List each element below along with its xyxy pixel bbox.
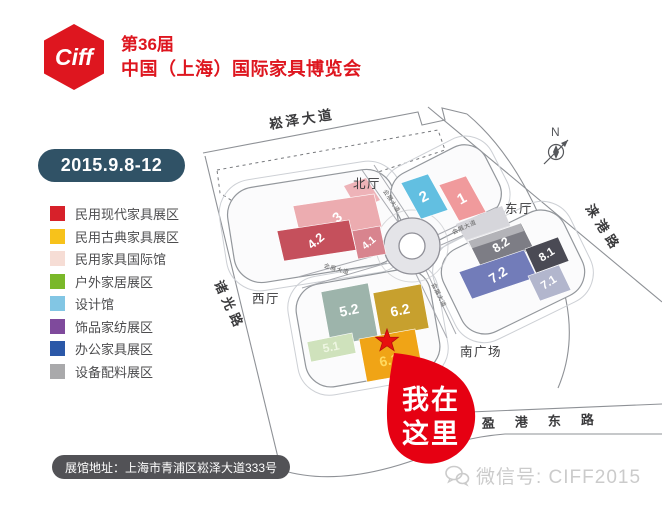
- south-plaza-label: 南广场: [460, 344, 502, 359]
- legend-swatch: [50, 229, 65, 244]
- legend-item: 饰品家纺展区: [50, 319, 179, 334]
- legend-swatch: [50, 206, 65, 221]
- legend-label: 设计馆: [75, 294, 114, 313]
- here-balloon: 我在 这里: [387, 353, 475, 464]
- legend-label: 办公家具展区: [75, 339, 153, 358]
- legend-label: 民用现代家具展区: [75, 204, 179, 223]
- legend-label: 民用家具国际馆: [75, 249, 166, 268]
- legend-swatch: [50, 319, 65, 334]
- date-badge: 2015.9.8-12: [38, 149, 185, 182]
- legend-label: 设备配料展区: [75, 362, 153, 381]
- page-title: 中国（上海）国际家具博览会: [121, 55, 362, 81]
- boundary-top: [203, 108, 467, 153]
- legend-item: 民用现代家具展区: [50, 206, 179, 221]
- wechat-icon: [444, 464, 470, 488]
- legend-item: 户外家居展区: [50, 274, 179, 289]
- here-balloon-line2: 这里: [402, 418, 460, 449]
- wechat-line: 微信号: CIFF2015: [444, 462, 641, 489]
- legend-label: 饰品家纺展区: [75, 317, 153, 336]
- legend-item: 民用古典家具展区: [50, 229, 179, 244]
- legend-swatch: [50, 341, 65, 356]
- legend-item: 民用家具国际馆: [50, 251, 179, 266]
- legend-swatch: [50, 296, 65, 311]
- road-yinggang-top-line: [470, 404, 662, 412]
- road-north-label: 崧泽大道: [268, 106, 336, 132]
- ciff-expo-map-page: 3 4.2 4.1 2 1 8.2 8.1 7.2 7.1 5.2 5.1 6.…: [0, 0, 662, 509]
- compass: N: [544, 125, 568, 164]
- west-hall-label: 西厅: [252, 292, 280, 306]
- compass-n-label: N: [551, 125, 560, 139]
- legend-swatch: [50, 274, 65, 289]
- here-balloon-line1: 我在: [402, 385, 460, 415]
- north-hall-label: 北厅: [353, 177, 381, 191]
- legend-swatch: [50, 251, 65, 266]
- road-south-label: 盈港东路: [481, 411, 614, 431]
- legend-item: 办公家具展区: [50, 341, 179, 356]
- zone-legend: 民用现代家具展区 民用古典家具展区 民用家具国际馆 户外家居展区 设计馆 饰品家…: [50, 206, 179, 379]
- ciff-logo-text: Ciff: [55, 44, 93, 71]
- legend-swatch: [50, 364, 65, 379]
- legend-item: 设计馆: [50, 296, 179, 311]
- wechat-id: 微信号: CIFF2015: [476, 462, 641, 489]
- roundabout-inner: [399, 233, 425, 259]
- road-east-label: 涞港路: [582, 201, 624, 254]
- venue-address: 展馆地址：上海市青浦区崧泽大道333号: [52, 455, 290, 479]
- legend-label: 户外家居展区: [75, 272, 153, 291]
- edition-label: 第36届: [121, 30, 174, 55]
- road-yinggang-bottom-line: [458, 434, 662, 442]
- legend-label: 民用古典家具展区: [75, 227, 179, 246]
- legend-item: 设备配料展区: [50, 364, 179, 379]
- east-hall-label: 东厅: [505, 202, 533, 216]
